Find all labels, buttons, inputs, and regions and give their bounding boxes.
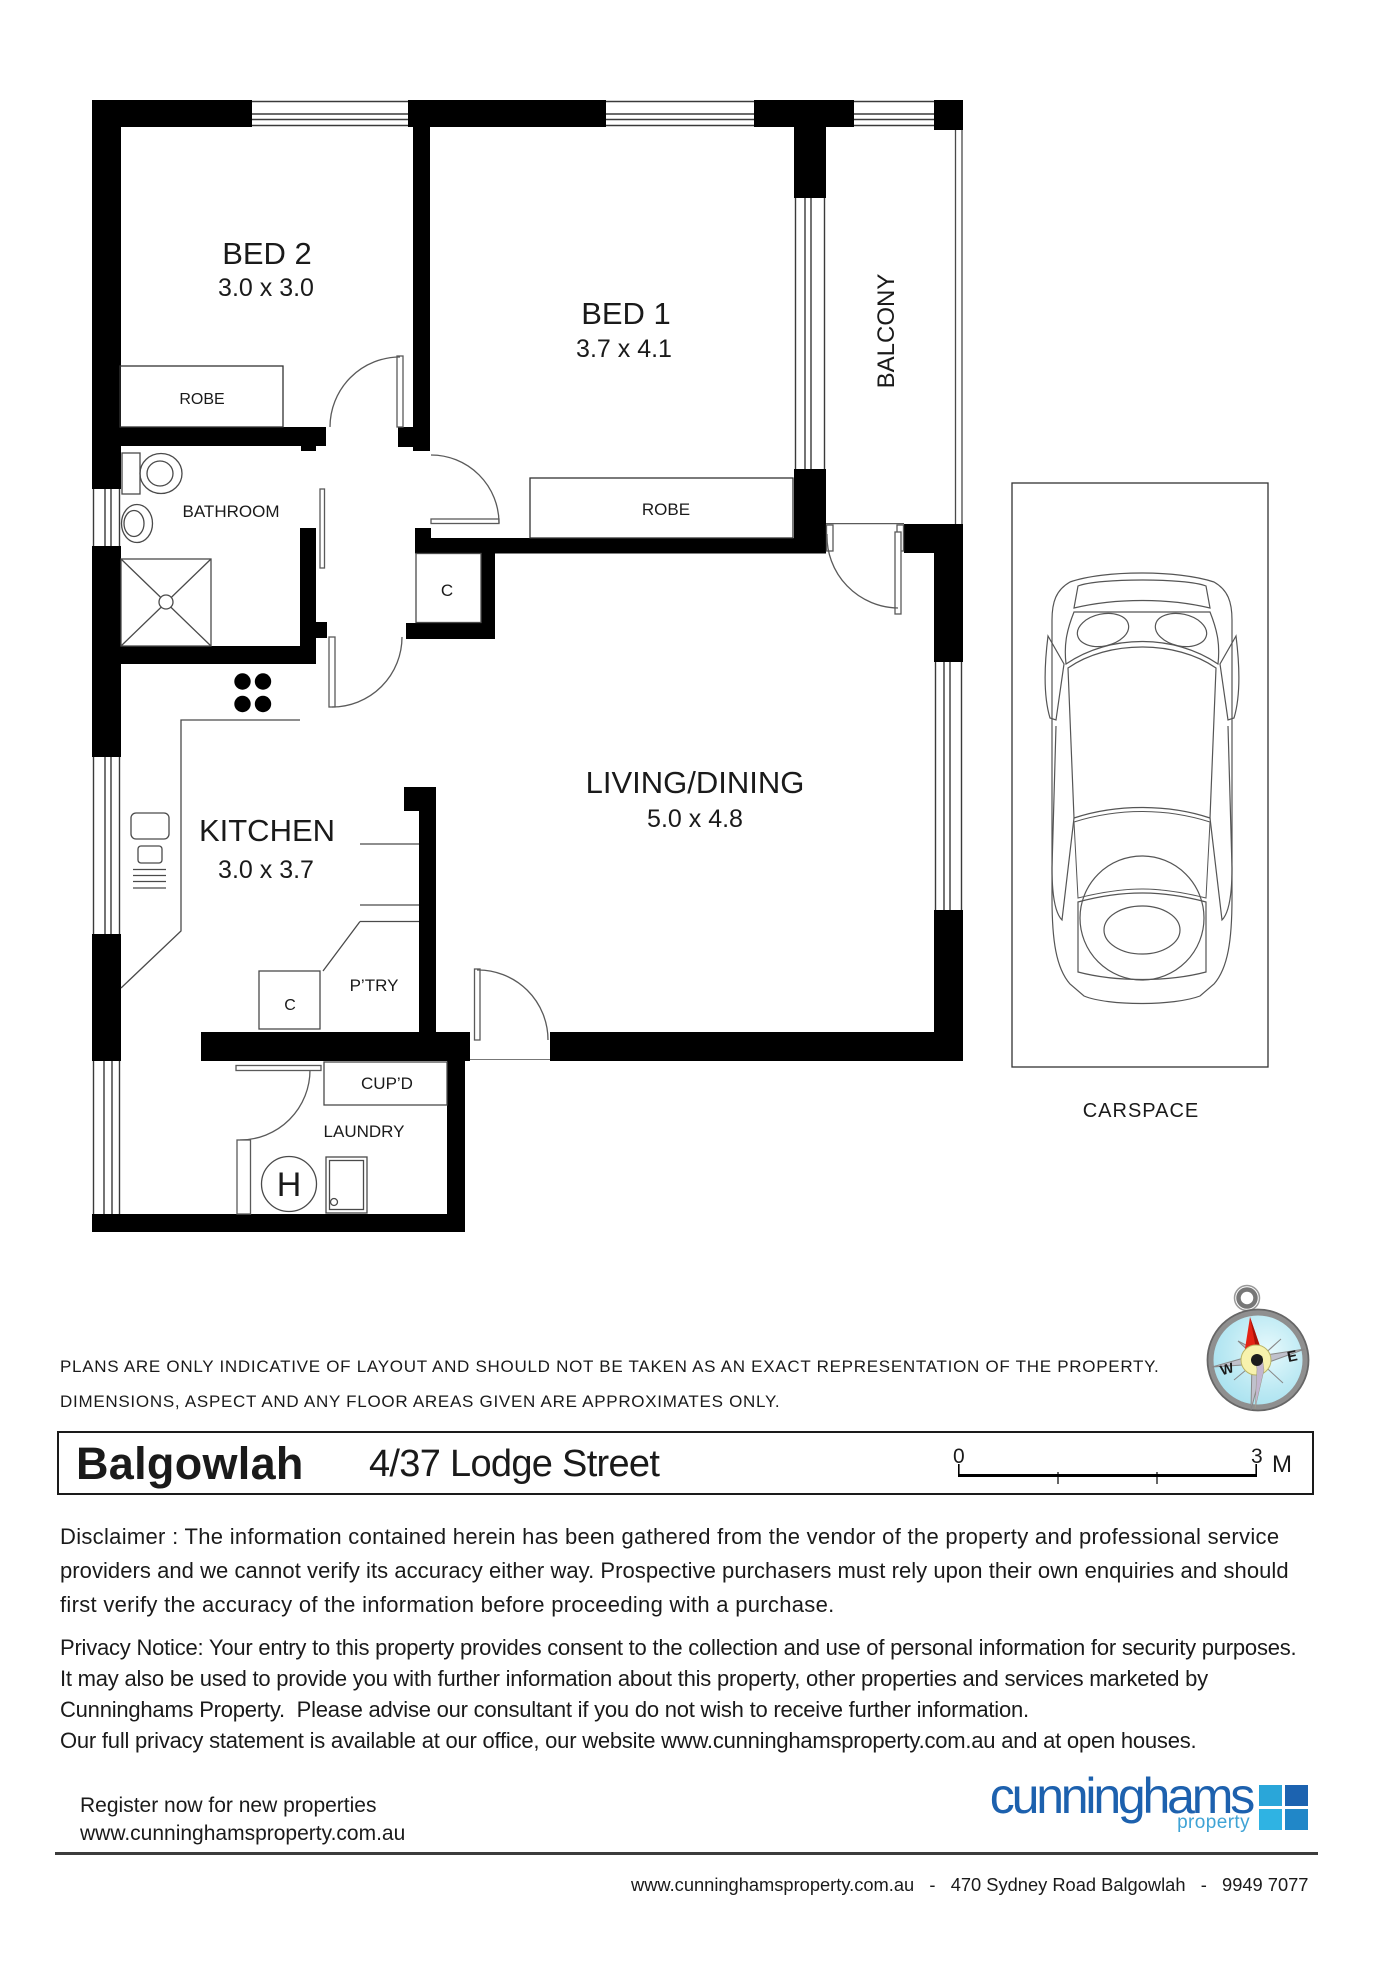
- svg-text:M: M: [1272, 1451, 1292, 1478]
